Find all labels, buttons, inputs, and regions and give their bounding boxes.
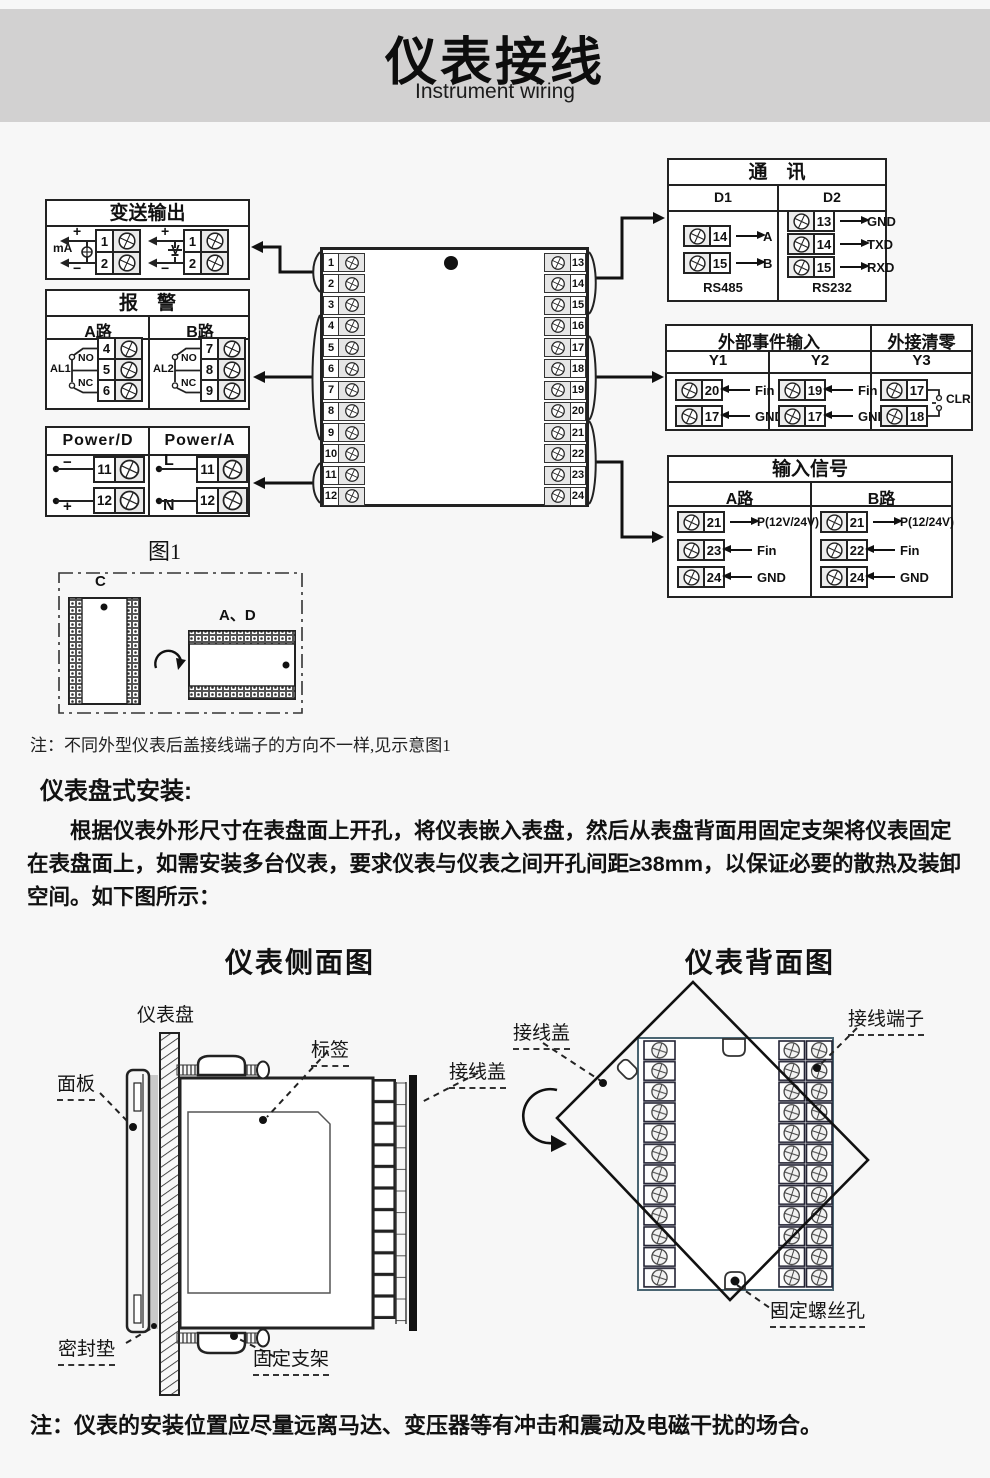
- arrow-right-icon: [736, 262, 758, 264]
- terminal-number: 4: [99, 339, 116, 358]
- rs232-label: RS232: [779, 280, 885, 295]
- terminal-unit: 5: [97, 358, 143, 381]
- terminal-number: 2: [97, 253, 114, 273]
- comm-title: 通 讯: [669, 160, 885, 186]
- screw-terminal-icon: [116, 381, 141, 400]
- terminal-number: 23: [703, 541, 723, 559]
- screw-terminal-icon: [545, 254, 570, 271]
- terminal-cell: 17: [544, 338, 586, 357]
- terminal-number: 6: [99, 381, 116, 400]
- terminal-unit: 15: [683, 252, 731, 274]
- screw-terminal-icon: [116, 489, 143, 512]
- terminal-number: 20: [570, 403, 585, 420]
- arrow-left-icon: [873, 576, 895, 578]
- terminal-number: 15: [709, 254, 729, 272]
- screw-terminal-icon: [780, 381, 804, 399]
- screw-terminal-icon: [219, 489, 246, 512]
- side-label-panel: 仪表盘: [137, 1000, 194, 1027]
- side-view-heading: 仪表侧面图: [205, 941, 395, 981]
- terminal-cell: 24: [544, 487, 586, 506]
- terminal-unit: 23: [677, 539, 725, 561]
- arrow-left-icon: [831, 415, 853, 417]
- screw-terminal-icon: [545, 360, 570, 377]
- screw-terminal-icon: [679, 568, 703, 586]
- terminal-number: 21: [846, 513, 866, 531]
- terminal-number: 11: [198, 458, 219, 481]
- terminal-cell: 6: [323, 359, 365, 378]
- terminal-unit: 8: [200, 358, 246, 381]
- terminal-number: 5: [99, 360, 116, 379]
- terminal-number: 14: [570, 275, 585, 292]
- terminal-cell: 12: [323, 487, 365, 506]
- note-figure1: 注：不同外型仪表后盖接线端子的方向不一样,见示意图1: [30, 731, 451, 756]
- terminal-unit: 15: [787, 256, 835, 278]
- screw-terminal-icon: [339, 275, 364, 292]
- comm-d2: D2: [779, 189, 885, 205]
- page-subtitle: Instrument wiring: [0, 80, 990, 104]
- terminal-cell: 9: [323, 423, 365, 442]
- screw-terminal-icon: [114, 253, 139, 273]
- input-signal-box: 输入信号 A路 B路 21 P(12V/24V) 23 Fin 24 GND 2…: [667, 455, 953, 598]
- signal-row: 23 Fin: [677, 539, 777, 561]
- screw-terminal-icon: [339, 318, 364, 335]
- arrow-right-icon: [840, 266, 862, 268]
- arrow-left-icon: [728, 389, 750, 391]
- signal-row: 17: [880, 379, 928, 401]
- screw-terminal-icon: [116, 339, 141, 358]
- v-wires: [139, 227, 183, 277]
- screw-terminal-icon: [545, 445, 570, 462]
- terminal-cell: 10: [323, 444, 365, 463]
- screw-terminal-icon: [822, 513, 846, 531]
- terminal-number: 24: [846, 568, 866, 586]
- terminal-cell: 1: [323, 253, 365, 272]
- arrow-right-icon: [840, 220, 862, 222]
- install-paragraph: 根据仪表外形尺寸在表盘面上开孔，将仪表嵌入表盘，然后从表盘背面用固定支架将仪表固…: [27, 815, 969, 914]
- terminal-cell: 23: [544, 466, 586, 485]
- terminal-number: 9: [324, 424, 339, 441]
- screw-terminal-icon: [677, 407, 701, 425]
- screw-terminal-icon: [685, 254, 709, 272]
- page: 仪表接线 Instrument wiring 变送输出 mA + − 1 2 V…: [0, 0, 990, 1478]
- power-d-wires: [51, 456, 93, 514]
- terminal-number: 20: [701, 381, 721, 399]
- back-label-cover: 接线盖: [513, 1018, 570, 1050]
- screw-terminal-icon: [339, 382, 364, 399]
- signal-label: Fin: [755, 383, 775, 398]
- terminal-number: 12: [95, 489, 116, 512]
- side-label-gasket: 密封垫: [58, 1334, 115, 1366]
- alarm-title: 报 警: [47, 291, 248, 317]
- clr-label: CLR: [946, 392, 971, 406]
- screw-terminal-icon: [339, 488, 364, 505]
- side-label-bracket: 固定支架: [253, 1344, 329, 1376]
- terminal-number: 1: [185, 231, 202, 251]
- screw-terminal-icon: [116, 458, 143, 481]
- terminal-number: 11: [324, 467, 339, 484]
- terminal-unit: 24: [820, 566, 868, 588]
- terminal-number: 19: [570, 382, 585, 399]
- terminal-unit: 14: [787, 233, 835, 255]
- terminal-number: 13: [813, 212, 833, 230]
- arrow-right-icon: [736, 235, 758, 237]
- terminal-cell: 18: [544, 359, 586, 378]
- terminal-unit: 2: [95, 251, 141, 275]
- screw-terminal-icon: [219, 381, 244, 400]
- screw-terminal-icon: [789, 258, 813, 276]
- signal-label: Fin: [757, 543, 777, 558]
- terminal-unit: 2: [183, 251, 229, 275]
- signal-row: 18: [880, 405, 928, 427]
- arrow-left-icon: [730, 549, 752, 551]
- terminal-unit: 12: [196, 487, 248, 514]
- transmitter-output-box: 变送输出 mA + − 1 2 V + −: [45, 199, 250, 280]
- terminal-number: 2: [324, 275, 339, 292]
- terminal-number: 4: [324, 318, 339, 335]
- terminal-number: 7: [324, 382, 339, 399]
- terminal-unit: 13: [787, 210, 835, 232]
- back-view-diagram: [505, 975, 983, 1395]
- screw-terminal-icon: [882, 407, 906, 425]
- screw-terminal-icon: [822, 568, 846, 586]
- event-input-box: 外部事件输入 外接清零 Y1 Y2 Y3 20 Fin 17 GND 19 Fi…: [665, 324, 973, 431]
- signal-label: P(12V/24V): [757, 515, 819, 529]
- signal-row: 13 GND: [787, 210, 896, 232]
- screw-terminal-icon: [114, 231, 139, 251]
- terminal-cell: 15: [544, 296, 586, 315]
- terminal-number: 10: [324, 445, 339, 462]
- screw-terminal-icon: [339, 403, 364, 420]
- y2-label: Y2: [770, 352, 870, 369]
- terminal-unit: 19: [778, 379, 826, 401]
- signal-row: 22 Fin: [820, 539, 920, 561]
- signal-label: TXD: [867, 237, 893, 252]
- arrow-left-icon: [873, 549, 895, 551]
- signal-row: 14 TXD: [787, 233, 893, 255]
- y3-label: Y3: [872, 352, 971, 369]
- screw-terminal-icon: [339, 424, 364, 441]
- terminal-number: 1: [97, 231, 114, 251]
- screw-terminal-icon: [339, 360, 364, 377]
- terminal-column-right: 13 14 15 16 17: [544, 253, 586, 506]
- screw-terminal-icon: [822, 541, 846, 559]
- terminal-number: 17: [906, 381, 926, 399]
- screw-terminal-icon: [679, 541, 703, 559]
- arrow-right-icon: [840, 243, 862, 245]
- terminal-number: 23: [570, 467, 585, 484]
- rs485-label: RS485: [669, 280, 777, 295]
- comm-d1: D1: [669, 189, 777, 205]
- terminal-number: 6: [324, 360, 339, 377]
- terminal-cell: 22: [544, 444, 586, 463]
- back-label-terminal: 接线端子: [848, 1004, 924, 1036]
- screw-terminal-icon: [219, 339, 244, 358]
- fig1-diagram: [55, 565, 307, 719]
- signal-label: GND: [757, 570, 786, 585]
- terminal-cell: 20: [544, 402, 586, 421]
- terminal-number: 18: [906, 407, 926, 425]
- screw-terminal-icon: [545, 403, 570, 420]
- terminal-number: 17: [570, 339, 585, 356]
- terminal-number: 8: [202, 360, 219, 379]
- terminal-number: 18: [570, 360, 585, 377]
- terminal-cell: 16: [544, 317, 586, 336]
- back-label-screw-hole: 固定螺丝孔: [770, 1296, 865, 1328]
- signal-label: Fin: [858, 383, 878, 398]
- terminal-number: 17: [701, 407, 721, 425]
- terminal-unit: 22: [820, 539, 868, 561]
- terminal-number: 15: [813, 258, 833, 276]
- arrow-left-icon: [831, 389, 853, 391]
- terminal-cell: 7: [323, 381, 365, 400]
- screw-terminal-icon: [685, 227, 709, 245]
- terminal-unit: 20: [675, 379, 723, 401]
- alarm-switch-b: [152, 337, 200, 407]
- signal-label: P(12/24V): [900, 515, 954, 529]
- signal-row: 19 Fin: [778, 379, 878, 401]
- signal-row: 24 GND: [820, 566, 929, 588]
- screw-terminal-icon: [219, 458, 246, 481]
- arrow-left-icon: [728, 415, 750, 417]
- terminal-column-left: 1 2 3 4 5: [323, 253, 365, 506]
- terminal-unit: 18: [880, 405, 928, 427]
- terminal-number: 13: [570, 254, 585, 271]
- terminal-number: 1: [324, 254, 339, 271]
- arrow-left-icon: [730, 576, 752, 578]
- terminal-unit: 21: [677, 511, 725, 533]
- screw-terminal-icon: [679, 513, 703, 531]
- signal-row: 15 RXD: [787, 256, 894, 278]
- terminal-number: 14: [709, 227, 729, 245]
- power-a-wires: [154, 456, 196, 514]
- signal-row: 17 GND: [675, 405, 784, 427]
- terminal-number: 3: [324, 297, 339, 314]
- terminal-unit: 1: [183, 229, 229, 253]
- terminal-cell: 2: [323, 274, 365, 293]
- screw-terminal-icon: [219, 360, 244, 379]
- orientation-dot: [444, 256, 458, 270]
- terminal-cell: 14: [544, 274, 586, 293]
- screw-terminal-icon: [545, 275, 570, 292]
- screw-terminal-icon: [116, 360, 141, 379]
- terminal-unit: 4: [97, 337, 143, 360]
- terminal-number: 19: [804, 381, 824, 399]
- power-a-title: Power/A: [150, 432, 250, 450]
- terminal-number: 11: [95, 458, 116, 481]
- signal-label: GND: [900, 570, 929, 585]
- screw-terminal-icon: [789, 235, 813, 253]
- terminal-unit: 7: [200, 337, 246, 360]
- terminal-unit: 24: [677, 566, 725, 588]
- screw-terminal-icon: [545, 318, 570, 335]
- signal-row: 17 GND: [778, 405, 887, 427]
- signal-row: 20 Fin: [675, 379, 775, 401]
- terminal-unit: 17: [778, 405, 826, 427]
- screw-terminal-icon: [202, 253, 227, 273]
- terminal-unit: 17: [880, 379, 928, 401]
- screw-terminal-icon: [339, 297, 364, 314]
- terminal-cell: 5: [323, 338, 365, 357]
- screw-terminal-icon: [780, 407, 804, 425]
- side-label-cover: 接线盖: [449, 1057, 506, 1089]
- signal-row: 24 GND: [677, 566, 786, 588]
- terminal-number: 16: [570, 318, 585, 335]
- arrow-right-icon: [873, 521, 895, 523]
- screw-terminal-icon: [545, 424, 570, 441]
- ma-wires: [51, 227, 95, 277]
- terminal-unit: 21: [820, 511, 868, 533]
- fig1-title: 图1: [148, 534, 181, 566]
- terminal-number: 12: [198, 489, 219, 512]
- screw-terminal-icon: [339, 254, 364, 271]
- screw-terminal-icon: [545, 382, 570, 399]
- signal-row: 15 B: [683, 252, 772, 274]
- terminal-number: 8: [324, 403, 339, 420]
- terminal-unit: 6: [97, 379, 143, 402]
- arrow-right-icon: [730, 521, 752, 523]
- screw-terminal-icon: [677, 381, 701, 399]
- terminal-cell: 21: [544, 423, 586, 442]
- terminal-number: 21: [570, 424, 585, 441]
- power-box: Power/D Power/A − + 11 12 L N 11 12: [45, 426, 250, 517]
- terminal-cell: 8: [323, 402, 365, 421]
- terminal-unit: 14: [683, 225, 731, 247]
- terminal-cell: 13: [544, 253, 586, 272]
- power-d-title: Power/D: [47, 432, 149, 450]
- screw-terminal-icon: [545, 339, 570, 356]
- screw-terminal-icon: [339, 467, 364, 484]
- terminal-number: 22: [846, 541, 866, 559]
- input-title: 输入信号: [669, 457, 951, 483]
- screw-terminal-icon: [545, 488, 570, 505]
- terminal-unit: 11: [93, 456, 145, 483]
- terminal-unit: 11: [196, 456, 248, 483]
- terminal-number: 24: [703, 568, 723, 586]
- terminal-unit: 12: [93, 487, 145, 514]
- terminal-cell: 4: [323, 317, 365, 336]
- terminal-unit: 17: [675, 405, 723, 427]
- signal-label: RXD: [867, 260, 894, 275]
- terminal-number: 14: [813, 235, 833, 253]
- side-label-tag: 标签: [311, 1035, 349, 1067]
- side-label-front: 面板: [57, 1069, 95, 1101]
- alarm-box: 报 警 A路 B路 AL1 NO NC 4 5 6: [45, 289, 250, 410]
- screw-terminal-icon: [545, 297, 570, 314]
- terminal-cell: 19: [544, 381, 586, 400]
- y1-label: Y1: [667, 352, 769, 369]
- terminal-block: 1 2 3 4 5: [320, 247, 589, 507]
- terminal-number: 2: [185, 253, 202, 273]
- terminal-unit: 1: [95, 229, 141, 253]
- signal-row: 14 A: [683, 225, 772, 247]
- communication-box: 通 讯 D1 D2 14 A 15 B 13 GND 14 TXD 15 RXD: [667, 158, 887, 302]
- note-installation: 注：仪表的安装位置应尽量远离马达、变压器等有冲击和震动及电磁干扰的场合。: [30, 1408, 822, 1440]
- signal-label: GND: [867, 214, 896, 229]
- terminal-unit: 9: [200, 379, 246, 402]
- signal-row: 21 P(12V/24V): [677, 511, 819, 533]
- signal-row: 21 P(12/24V): [820, 511, 954, 533]
- screw-terminal-icon: [545, 467, 570, 484]
- terminal-number: 24: [570, 488, 585, 505]
- terminal-number: 12: [324, 488, 339, 505]
- terminal-number: 22: [570, 445, 585, 462]
- terminal-cell: 11: [323, 466, 365, 485]
- terminal-number: 5: [324, 339, 339, 356]
- screw-terminal-icon: [789, 212, 813, 230]
- terminal-number: 9: [202, 381, 219, 400]
- screw-terminal-icon: [882, 381, 906, 399]
- signal-label: Fin: [900, 543, 920, 558]
- terminal-number: 21: [703, 513, 723, 531]
- terminal-number: 17: [804, 407, 824, 425]
- screw-terminal-icon: [339, 339, 364, 356]
- terminal-cell: 3: [323, 296, 365, 315]
- install-heading: 仪表盘式安装:: [40, 771, 192, 806]
- screw-terminal-icon: [202, 231, 227, 251]
- alarm-switch-a: [49, 337, 97, 407]
- terminal-number: 7: [202, 339, 219, 358]
- screw-terminal-icon: [339, 445, 364, 462]
- terminal-number: 15: [570, 297, 585, 314]
